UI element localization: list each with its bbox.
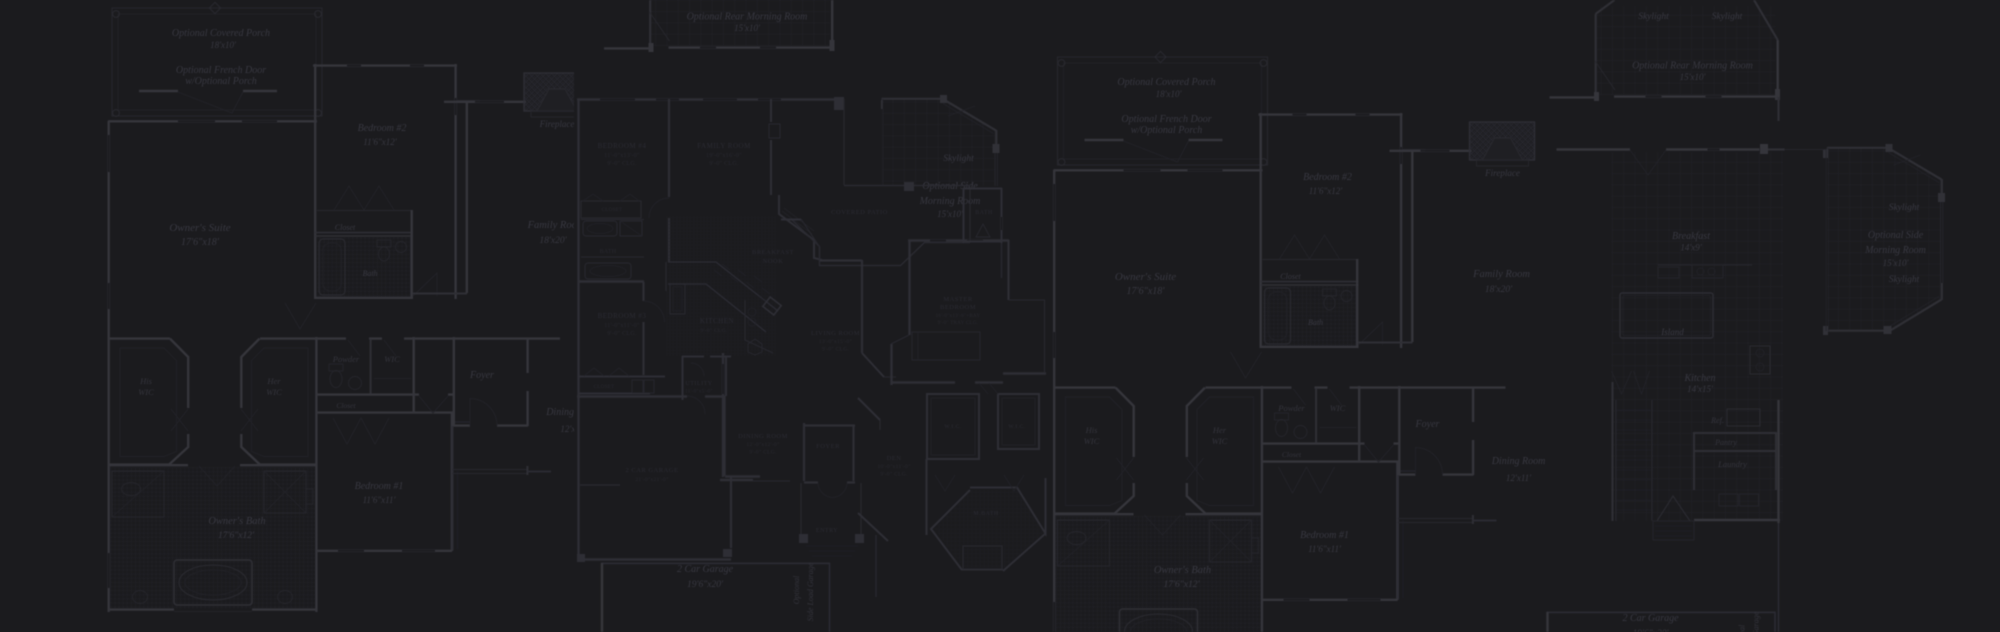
svg-text:ENTRY: ENTRY [816,528,838,534]
svg-text:9'-0" CLG.: 9'-0" CLG. [607,161,637,167]
svg-text:12'-0"x12'-0": 12'-0"x12'-0" [746,442,779,448]
svg-text:W.I.C.: W.I.C. [944,424,961,430]
svg-text:9'-0" CLG.: 9'-0" CLG. [709,161,739,167]
svg-text:DINING ROOM: DINING ROOM [738,433,788,440]
svg-text:UTILITY: UTILITY [685,381,712,387]
svg-text:DEN: DEN [887,455,902,462]
svg-text:W.I.C.: W.I.C. [1008,424,1025,430]
svg-text:9'-0" CLG.: 9'-0" CLG. [880,472,908,478]
svg-text:19'-0"x16'-0": 19'-0"x16'-0" [706,153,742,159]
svg-text:21'-0"x21'-0": 21'-0"x21'-0" [635,477,668,483]
svg-text:FAMILY ROOM: FAMILY ROOM [697,142,751,150]
svg-text:13'-0"x15'-0": 13'-0"x15'-0" [819,339,852,345]
svg-text:BEDROOM #4: BEDROOM #4 [598,142,647,150]
svg-text:FOYER: FOYER [816,443,840,450]
svg-text:BREAKFAST: BREAKFAST [752,249,794,256]
svg-text:BEDROOM: BEDROOM [940,304,976,311]
svg-text:COVERED PATIO: COVERED PATIO [831,209,888,216]
svg-text:9'-0" TRAY CLG.: 9'-0" TRAY CLG. [938,321,979,326]
svg-text:M.BATH: M.BATH [973,511,999,517]
svg-text:9'-0" CLG.: 9'-0" CLG. [749,450,777,456]
svg-text:2 CAR GARAGE: 2 CAR GARAGE [626,467,679,474]
svg-text:BATH: BATH [975,210,993,216]
svg-text:KITCHEN: KITCHEN [700,317,734,325]
svg-text:Morning Room: Morning Room [919,196,981,207]
svg-text:LIVING ROOM: LIVING ROOM [811,330,860,337]
svg-text:11'-0"x13'-0": 11'-0"x13'-0" [604,153,640,159]
svg-text:15'x10': 15'x10' [937,209,964,219]
svg-text:BATH: BATH [600,249,617,255]
svg-text:9'-0" CLG.: 9'-0" CLG. [700,328,728,334]
svg-text:NOOK: NOOK [763,258,784,265]
svg-text:BEDROOM #3: BEDROOM #3 [598,312,647,320]
svg-text:MASTER: MASTER [943,296,973,303]
svg-text:CLOSET: CLOSET [602,208,623,213]
svg-text:16'-0"x13'-6"+BAY: 16'-0"x13'-6"+BAY [936,314,981,319]
svg-text:10'-0"x11'-0": 10'-0"x11'-0" [877,464,910,470]
svg-text:9'-0" CLG.: 9'-0" CLG. [607,331,637,337]
svg-text:11'-0"x11'-0": 11'-0"x11'-0" [604,323,640,329]
svg-text:9'-0" CLG.: 9'-0" CLG. [822,347,850,353]
svg-text:CLOSET: CLOSET [594,385,615,390]
svg-text:11'-0"x5'-0": 11'-0"x5'-0" [685,390,713,395]
